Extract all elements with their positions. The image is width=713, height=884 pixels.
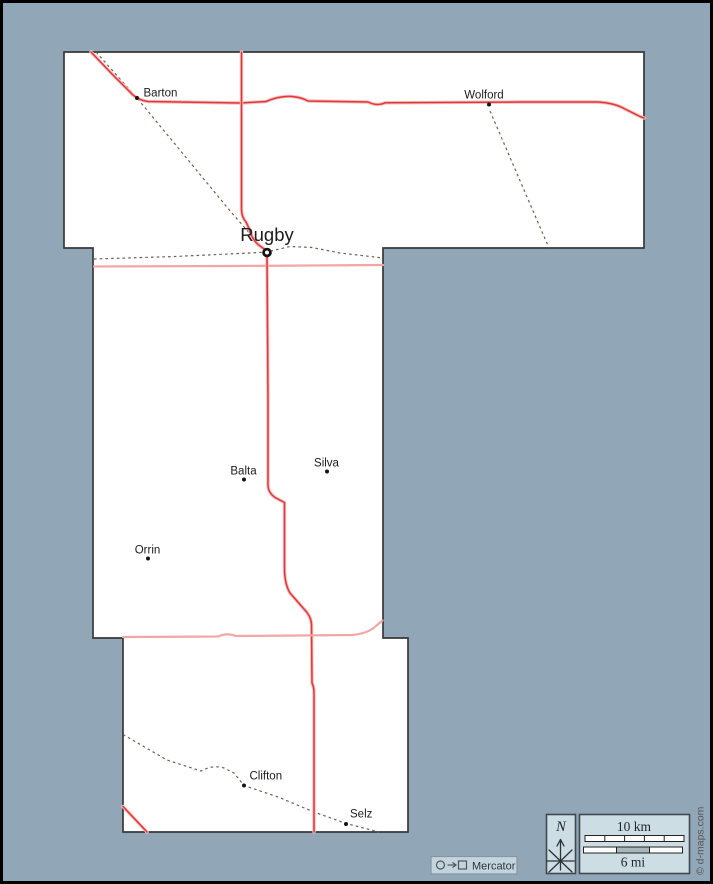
scale-km-label: 10 km: [617, 819, 652, 834]
map-canvas: Barton Wolford Rugby Balta Silva Orrin C…: [0, 0, 713, 884]
town-label: Barton: [144, 88, 178, 100]
town-dot: [135, 96, 139, 100]
town-dot: [242, 784, 246, 788]
scale-bar-panel: 10 km 6 mi: [580, 815, 690, 874]
town-dot: [325, 470, 329, 474]
town-label: Wolford: [464, 90, 503, 102]
town-label: Balta: [230, 466, 257, 478]
town-dot: [146, 557, 150, 561]
north-arrow-panel: N: [547, 815, 576, 874]
projection-badge: Mercator: [431, 857, 517, 875]
town-dot: [242, 478, 246, 482]
north-label: N: [555, 819, 567, 835]
scale-bar-mi: [584, 847, 683, 853]
town-label: Clifton: [250, 771, 283, 783]
copyright-watermark: © d-maps.com: [695, 806, 707, 875]
city-label: Rugby: [240, 224, 294, 245]
town-label: Selz: [350, 809, 373, 821]
county-map-svg: Barton Wolford Rugby Balta Silva Orrin C…: [0, 0, 713, 884]
town-label: Silva: [314, 458, 340, 470]
projection-name-label: Mercator: [472, 861, 516, 873]
town-dot: [344, 822, 348, 826]
town-dot: [487, 103, 491, 107]
scale-mi-label: 6 mi: [621, 855, 646, 870]
city-ring-marker: [264, 249, 271, 256]
town-label: Orrin: [135, 545, 161, 557]
scale-bar-km: [585, 836, 684, 842]
